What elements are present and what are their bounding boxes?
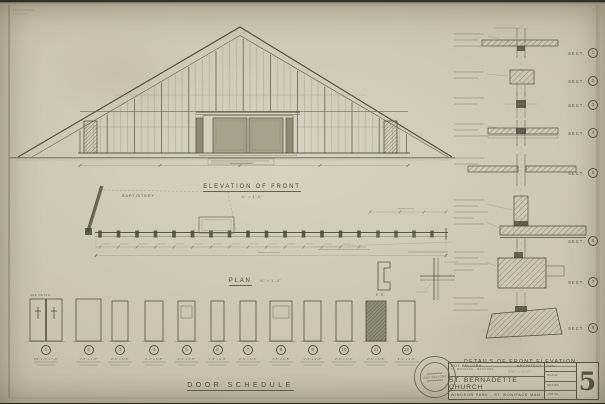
architect-row: ROY SELLORS ARCHITECT ST. BONIFACE · MAN… xyxy=(449,363,544,377)
section-label-8: SECT.8 xyxy=(550,323,598,333)
project-name: ST. BERNADETTE CHURCH xyxy=(449,377,544,391)
section-number: 3 xyxy=(588,100,598,110)
section-label-4: SECT.4 xyxy=(550,128,598,138)
plan-scale: ¼" = 1'-0" xyxy=(260,279,281,283)
seal-inner-ring: ROY SELLORS xyxy=(419,361,451,393)
section-word: SECT. xyxy=(568,171,585,176)
section-number: 8 xyxy=(588,323,598,333)
door-number: 8 xyxy=(276,345,286,355)
blueprint-sheet: { "drawing_titles": { "elevation": {"tit… xyxy=(0,0,605,404)
door-number: 5 xyxy=(182,345,192,355)
section-word: SECT. xyxy=(568,239,585,244)
title-block-fields: DATE SCALE DRAWN JOB No. xyxy=(545,363,577,399)
section-word: SECT. xyxy=(568,103,585,108)
section-number: 4 xyxy=(588,128,598,138)
elevation-title-text: ELEVATION OF FRONT xyxy=(203,184,301,192)
section-label-3: SECT.3 xyxy=(550,100,598,110)
baptistery-room-label: BAPTISTERY xyxy=(122,193,155,198)
door-number: 3 xyxy=(115,345,125,355)
full-size-label: F.S. xyxy=(376,292,386,297)
title-block: ROY SELLORS ARCHITECT ST. BONIFACE · MAN… xyxy=(448,362,599,400)
field-scale: SCALE xyxy=(545,372,576,381)
door-number: 2 xyxy=(84,345,94,355)
door-number: 4 xyxy=(149,345,159,355)
door-size: PR. 2'-6" x 7'-0" xyxy=(26,357,66,361)
door-schedule-title-text: DOOR SCHEDULE xyxy=(187,382,294,391)
sheet-number: 5 xyxy=(577,363,598,399)
drawing-canvas xyxy=(0,0,605,404)
door-number: 9 xyxy=(308,345,318,355)
see-detail-note: SEE DETAIL xyxy=(30,293,51,297)
door-schedule-title: DOOR SCHEDULE xyxy=(178,374,303,392)
section-number: 5 xyxy=(588,168,598,178)
plan-title-text: PLAN xyxy=(229,278,252,286)
field-job: JOB No. xyxy=(545,391,576,399)
door-number: 6 xyxy=(213,345,223,355)
elevation-title: ELEVATION OF FRONT ¼" = 1'-0" xyxy=(192,175,312,199)
title-block-left: ROY SELLORS ARCHITECT ST. BONIFACE · MAN… xyxy=(449,363,545,399)
section-label-7: SECT.7 xyxy=(550,277,598,287)
section-number: 1 xyxy=(588,48,598,58)
elevation-scale: ¼" = 1'-0" xyxy=(192,195,312,199)
architect-address: ST. BONIFACE · MANITOBA xyxy=(451,368,542,371)
section-word: SECT. xyxy=(568,131,585,136)
section-number: 6 xyxy=(588,236,598,246)
section-details-drawing xyxy=(454,26,586,342)
field-date: DATE xyxy=(545,363,576,372)
section-label-5: SECT.5 xyxy=(550,168,598,178)
door-number: 1 xyxy=(41,345,51,355)
section-word: SECT. xyxy=(568,326,585,331)
section-word: SECT. xyxy=(568,280,585,285)
architect-title: ARCHITECT xyxy=(517,364,542,368)
door-label-1: 1PR. 2'-6" x 7'-0" xyxy=(26,345,66,361)
seal-rule xyxy=(427,379,443,381)
section-word: SECT. xyxy=(568,79,585,84)
front-elevation-drawing xyxy=(10,27,455,167)
section-word: SECT. xyxy=(568,51,585,56)
door-number: 10 xyxy=(339,345,349,355)
door-number: 12 xyxy=(402,345,412,355)
door-number: 7 xyxy=(243,345,253,355)
section-number: 7 xyxy=(588,277,598,287)
section-label-1: SECT.1 xyxy=(550,48,598,58)
section-label-2: SECT.2 xyxy=(550,76,598,86)
section-number: 2 xyxy=(588,76,598,86)
door-number: 11 xyxy=(371,345,381,355)
plan-title: PLAN ¼" = 1'-0" xyxy=(200,269,310,287)
project-location: WINDSOR PARK - ST. BONIFACE MAN. xyxy=(449,391,544,399)
field-drawn: DRAWN xyxy=(545,382,576,391)
door-label-12: 122'-0" x 6'-8" xyxy=(387,345,427,361)
section-label-6: SECT.6 xyxy=(550,236,598,246)
